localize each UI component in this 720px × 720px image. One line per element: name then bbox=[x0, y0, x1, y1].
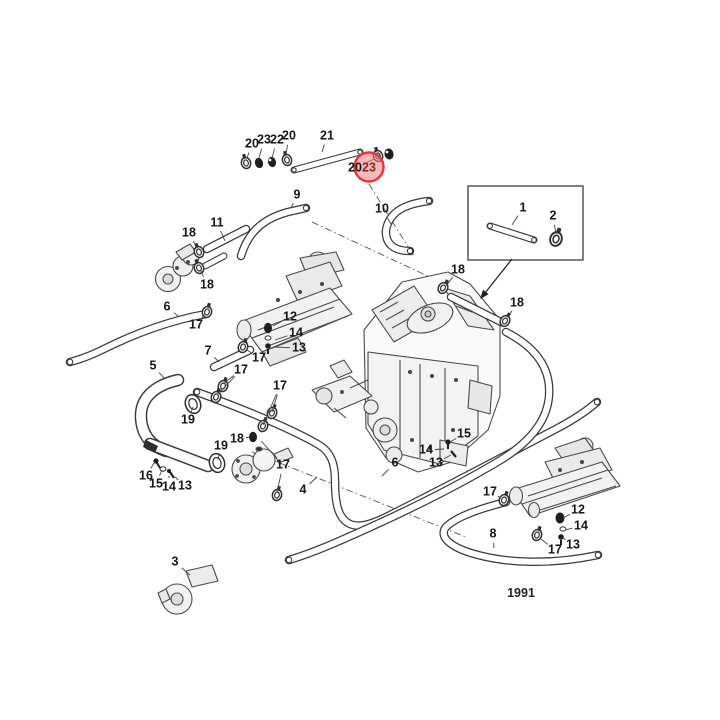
leader-line bbox=[274, 347, 290, 348]
clamp-20 bbox=[239, 153, 252, 170]
hose-end bbox=[426, 198, 431, 203]
part-callout-4: 4 bbox=[300, 482, 307, 496]
fitting-23 bbox=[254, 157, 264, 169]
part-callout-5: 5 bbox=[150, 358, 157, 372]
plug-13 bbox=[265, 343, 271, 349]
hose-end bbox=[303, 205, 308, 210]
tube-end bbox=[532, 238, 537, 243]
part-callout-17: 17 bbox=[189, 317, 203, 331]
hose-end bbox=[595, 552, 601, 558]
washer-14 bbox=[560, 527, 566, 531]
washer-14 bbox=[265, 336, 271, 340]
thermostat-housing bbox=[312, 360, 372, 418]
hose-end bbox=[594, 399, 600, 405]
part-callout-14: 14 bbox=[574, 518, 588, 532]
leader-line bbox=[247, 152, 249, 158]
part-callout-13: 13 bbox=[566, 537, 580, 551]
leader-line bbox=[259, 149, 262, 158]
clamp-17 bbox=[271, 485, 284, 502]
part-callout-14: 14 bbox=[289, 325, 303, 339]
part-callout-18: 18 bbox=[200, 277, 214, 291]
leader-line bbox=[246, 437, 250, 438]
leader-line bbox=[310, 477, 317, 484]
tube-end bbox=[488, 224, 493, 229]
leader-line bbox=[541, 539, 548, 544]
part-callout-18: 18 bbox=[182, 225, 196, 239]
part-callout-12: 12 bbox=[283, 309, 297, 323]
part-callout-14: 14 bbox=[419, 442, 433, 456]
leader-line bbox=[382, 469, 389, 476]
part-callout-7: 7 bbox=[205, 343, 212, 357]
fitting-hole bbox=[386, 151, 389, 154]
part-callout-17: 17 bbox=[548, 542, 562, 556]
part-callout-9: 9 bbox=[294, 187, 301, 201]
washer-15 bbox=[160, 467, 166, 471]
part-callout-23: 23 bbox=[362, 160, 376, 174]
part-callout-23: 23 bbox=[257, 132, 271, 146]
part-callout-20: 20 bbox=[282, 128, 296, 142]
hose-end bbox=[286, 557, 292, 563]
leader-line bbox=[322, 145, 324, 152]
leader-line bbox=[272, 149, 275, 158]
part-callout-18: 18 bbox=[230, 431, 244, 445]
part-callout-1: 1 bbox=[520, 200, 527, 214]
part-callout-12: 12 bbox=[571, 502, 585, 516]
part-callout-6: 6 bbox=[392, 455, 399, 469]
part-callout-17: 17 bbox=[276, 457, 290, 471]
part-callout-18: 18 bbox=[451, 262, 465, 276]
part-callout-15: 15 bbox=[457, 426, 471, 440]
bolt-16-stem bbox=[157, 463, 160, 468]
cooling-system-parts-diagram: 2023222021202312910111818181861712141371… bbox=[0, 0, 720, 720]
part-callout-19: 19 bbox=[181, 412, 195, 426]
inset-box-frame bbox=[468, 186, 583, 260]
part-callout-11: 11 bbox=[210, 215, 223, 229]
plug-13 bbox=[558, 534, 564, 540]
fitting-23 bbox=[383, 148, 395, 161]
leader-line bbox=[286, 145, 288, 154]
part-callout-8: 8 bbox=[490, 526, 497, 540]
screw-14 bbox=[170, 472, 174, 478]
hose-end bbox=[194, 389, 200, 395]
part-callout-17: 17 bbox=[252, 350, 266, 364]
part-callout-14: 14 bbox=[162, 479, 176, 493]
part-callout-13: 13 bbox=[429, 455, 443, 469]
part-callout-17: 17 bbox=[234, 362, 248, 376]
hose-end bbox=[67, 359, 73, 365]
bolt-15 bbox=[445, 439, 450, 444]
hose-end bbox=[407, 248, 412, 253]
fitting-12 bbox=[264, 323, 272, 333]
tube-end bbox=[292, 168, 296, 172]
bracket-pulley-assembly bbox=[158, 565, 218, 614]
inset-pointer-arrow bbox=[481, 259, 512, 298]
part-callout-20: 20 bbox=[348, 160, 362, 174]
starboard-exhaust-manifold bbox=[510, 438, 621, 518]
parts-diagram-page: 2023222021202312910111818181861712141371… bbox=[0, 0, 720, 720]
part-callout-21: 21 bbox=[320, 128, 334, 142]
leader-line bbox=[435, 449, 444, 450]
part-callout-2: 2 bbox=[550, 208, 557, 222]
fitting-18 bbox=[249, 432, 257, 442]
part-callout-15: 15 bbox=[149, 476, 163, 490]
fitting-hole bbox=[269, 159, 272, 162]
part-callout-10: 10 bbox=[375, 201, 389, 215]
part-callout-3: 3 bbox=[172, 554, 179, 568]
circulating-pump bbox=[156, 244, 200, 292]
part-callout-18: 18 bbox=[510, 295, 524, 309]
leader-line bbox=[159, 373, 165, 379]
leader-line bbox=[174, 313, 178, 316]
part-callout-13: 13 bbox=[178, 478, 192, 492]
part-callout-19: 19 bbox=[214, 438, 228, 452]
year-caption: 1991 bbox=[507, 586, 535, 600]
part-callout-13: 13 bbox=[292, 340, 306, 354]
part-callout-17: 17 bbox=[483, 484, 497, 498]
clamp-17 bbox=[531, 525, 545, 542]
part-callout-17: 17 bbox=[273, 378, 287, 392]
part-callout-6: 6 bbox=[164, 299, 171, 313]
